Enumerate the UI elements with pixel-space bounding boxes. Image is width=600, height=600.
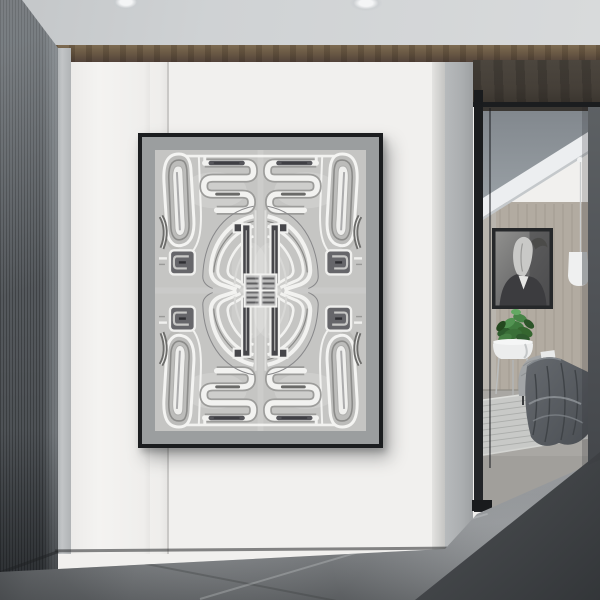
throw-blanket — [525, 357, 588, 446]
door-frame-jamb — [474, 90, 483, 512]
doorway — [483, 104, 588, 512]
framed-abstract-artwork — [138, 133, 383, 448]
right-jamb-wall — [588, 104, 600, 482]
white-wall-side-return — [432, 62, 445, 554]
door-frame-lintel — [473, 102, 600, 107]
artwork-mat — [142, 137, 379, 444]
doorway-column — [445, 62, 473, 553]
mirror-seam-horizontal — [155, 287, 366, 293]
artwork-print — [155, 150, 366, 431]
bedroom-view — [483, 104, 588, 512]
scene-root — [0, 0, 600, 600]
horse-portrait — [492, 228, 553, 309]
door-glass-edge — [489, 108, 491, 468]
ceiling — [0, 0, 600, 48]
doorway-soffit — [473, 60, 600, 107]
fluted-dark-wall — [0, 0, 60, 600]
